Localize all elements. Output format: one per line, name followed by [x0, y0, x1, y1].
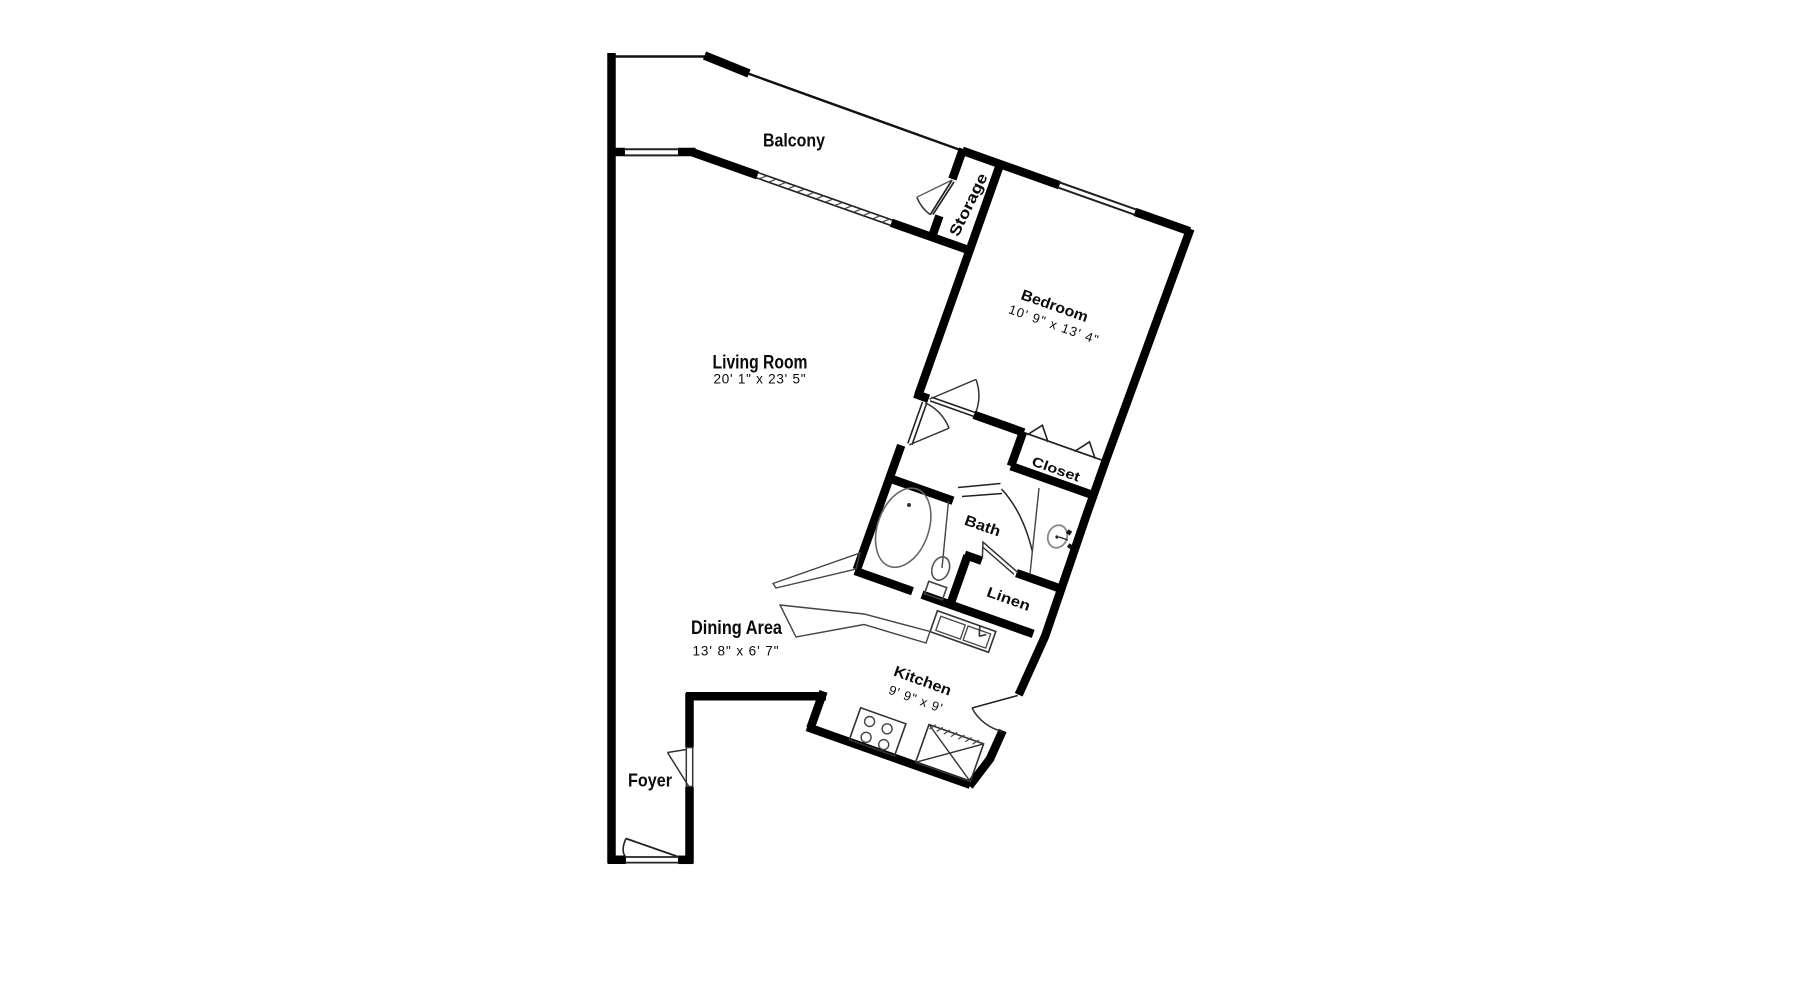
svg-text:20' 1" x 23' 5": 20' 1" x 23' 5": [714, 372, 806, 387]
svg-text:13' 8" x 6' 7": 13' 8" x 6' 7": [693, 644, 779, 659]
svg-text:Dining Area: Dining Area: [691, 618, 782, 639]
svg-text:Balcony: Balcony: [763, 131, 825, 151]
svg-text:Foyer: Foyer: [628, 771, 672, 791]
svg-text:Living Room: Living Room: [713, 352, 808, 373]
